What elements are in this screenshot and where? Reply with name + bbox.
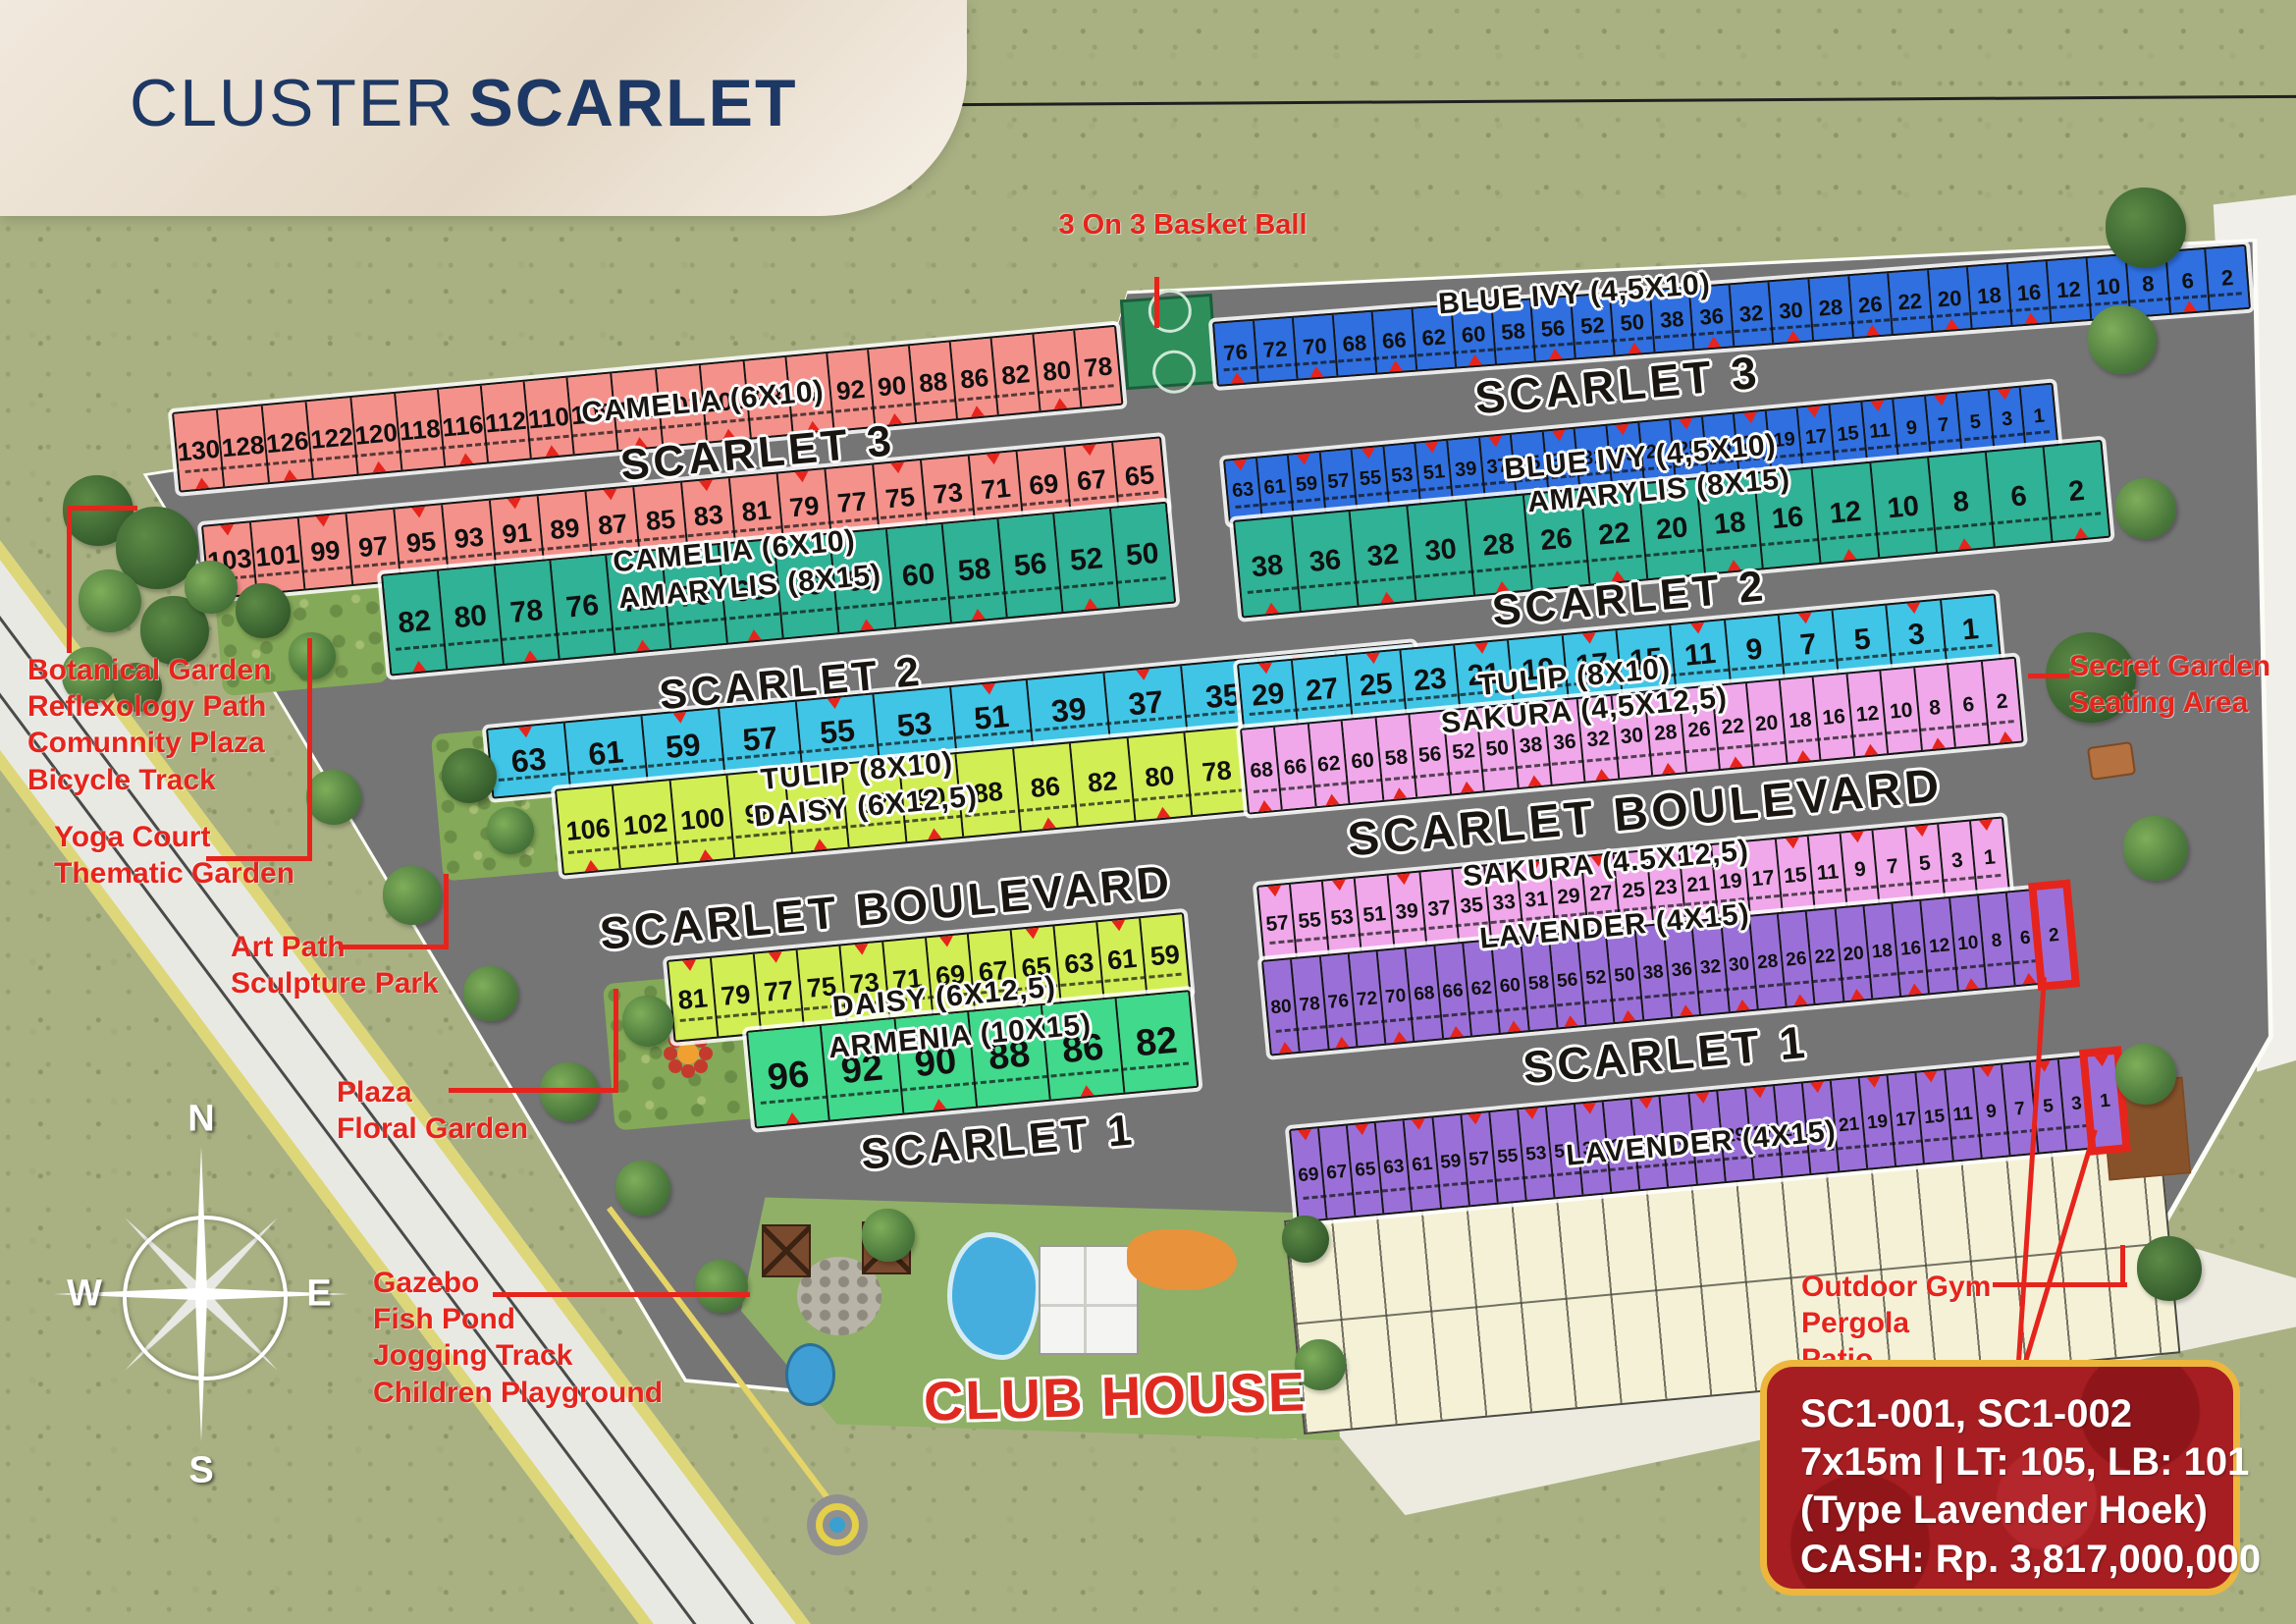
lot-e-76[interactable]: 76 [1214, 321, 1258, 385]
lot-number: 32 [1699, 956, 1722, 977]
lot-number: 59 [1439, 1151, 1462, 1171]
lot-a-126[interactable]: 126 [263, 402, 314, 482]
lot-number: 19 [1718, 870, 1742, 893]
lot-g2-2[interactable]: 2 [1983, 659, 2022, 744]
lot-number: 52 [1584, 967, 1607, 988]
lot-number: 11 [1816, 861, 1840, 884]
lot-number: 16 [2016, 282, 2042, 305]
lot-number: 11 [1869, 420, 1892, 442]
lot-a-116[interactable]: 116 [439, 386, 489, 466]
lot-number: 62 [1316, 752, 1341, 775]
lot-number: 38 [1659, 308, 1684, 332]
lot-number: 38 [1642, 962, 1665, 983]
lot-f2-10[interactable]: 10 [1871, 458, 1938, 557]
lot-number: 17 [1750, 867, 1775, 890]
lot-number: 80 [1144, 762, 1175, 791]
lot-number: 23 [1653, 876, 1678, 898]
label-botanical-garden: Botanical GardenReflexology PathComunnit… [27, 652, 271, 798]
lot-number: 99 [309, 537, 341, 567]
lot-number: 27 [1305, 675, 1340, 707]
lot-b1-99[interactable]: 99 [299, 514, 353, 588]
lot-a-130[interactable]: 130 [174, 410, 225, 491]
tree-icon [185, 561, 238, 614]
leader-line [206, 856, 309, 861]
lot-number: 30 [1620, 725, 1644, 747]
lot-d1-81[interactable]: 81 [668, 958, 719, 1041]
lot-b2-82[interactable]: 82 [383, 571, 448, 675]
title-regular: CLUSTER [130, 66, 454, 140]
lot-number: 80 [1270, 997, 1293, 1017]
lot-number: 59 [1295, 473, 1318, 495]
lot-number: 9 [1744, 635, 1763, 666]
fish-pond-icon [785, 1343, 835, 1406]
leader-line [449, 1088, 617, 1093]
lot-number: 61 [1263, 476, 1287, 498]
lot-c2-102[interactable]: 102 [614, 781, 678, 868]
lot-number: 18 [1713, 508, 1747, 539]
lot-number: 6 [2181, 270, 2195, 293]
lot-number: 80 [1041, 356, 1072, 385]
lot-number: 88 [918, 368, 948, 397]
lot-number: 76 [1223, 341, 1249, 364]
tree-icon [463, 966, 518, 1021]
lot-f2-38[interactable]: 38 [1235, 516, 1302, 616]
lot-c2-100[interactable]: 100 [671, 776, 736, 863]
tree-icon [615, 1161, 670, 1216]
lot-b2-80[interactable]: 80 [439, 566, 504, 669]
lot-number: 3 [1950, 849, 1964, 871]
compass-east: E [306, 1273, 331, 1316]
lot-number: 68 [1250, 759, 1274, 782]
lot-number: 61 [1411, 1154, 1433, 1174]
lot-number: 36 [1308, 546, 1343, 577]
lot-number: 7 [1937, 415, 1949, 436]
lot-number: 73 [933, 479, 964, 509]
lot-a-90[interactable]: 90 [869, 346, 917, 426]
lot-c2-106[interactable]: 106 [557, 785, 621, 873]
lot-number: 62 [1470, 978, 1493, 999]
lot-number: 83 [693, 501, 724, 530]
lot-g1-11[interactable]: 11 [1672, 621, 1732, 690]
lot-number: 17 [1895, 1109, 1917, 1129]
lot-number: 7 [2013, 1099, 2025, 1118]
lot-e-26[interactable]: 26 [1849, 273, 1894, 337]
cluster-scarlet-site-plan: 1301281261221201181161121101081061021009… [0, 0, 2296, 1624]
lot-f2-32[interactable]: 32 [1351, 506, 1417, 605]
floral-garden-icon [677, 1043, 699, 1064]
lot-number: 95 [405, 528, 437, 558]
tree-icon [695, 1260, 748, 1313]
lot-number: 37 [1127, 685, 1164, 720]
lot-number: 32 [1738, 302, 1764, 326]
lot-number: 65 [1124, 461, 1155, 491]
lot-number: 97 [357, 532, 389, 562]
lot-e-66[interactable]: 66 [1373, 309, 1417, 373]
lot-number: 5 [1918, 852, 1932, 874]
lot-number: 21 [1685, 873, 1710, 895]
lot-number: 26 [1857, 294, 1883, 317]
lot-number: 12 [1928, 936, 1950, 956]
tree-icon [289, 632, 336, 679]
lot-number: 86 [1030, 773, 1061, 802]
lot-a-128[interactable]: 128 [218, 406, 269, 486]
lot-number: 120 [353, 419, 399, 449]
lot-g1-23[interactable]: 23 [1401, 645, 1461, 715]
lot-number: 36 [1699, 305, 1725, 329]
lot-number: 29 [1556, 885, 1580, 907]
lot-number: 96 [766, 1056, 811, 1097]
lot-number: 15 [1923, 1107, 1946, 1127]
lot-e-20[interactable]: 20 [1929, 267, 1973, 331]
lot-g1-9[interactable]: 9 [1726, 616, 1786, 685]
lot-number: 5 [1853, 624, 1872, 655]
leader-line [614, 989, 618, 1093]
lot-e-2[interactable]: 2 [2207, 246, 2249, 310]
lot-number: 10 [1886, 492, 1920, 523]
lot-number: 63 [509, 743, 547, 778]
lot-number: 122 [309, 423, 354, 453]
lot-number: 126 [265, 427, 310, 457]
tree-icon [487, 807, 534, 854]
lot-number: 52 [1579, 314, 1605, 338]
lot-number: 8 [1991, 931, 2002, 950]
lot-c2-86[interactable]: 86 [1014, 743, 1079, 831]
lot-number: 2 [2048, 925, 2059, 945]
lot-number: 55 [1298, 909, 1322, 932]
lot-number: 112 [484, 407, 527, 437]
label-line: Pergola [1801, 1305, 1991, 1341]
lot-number: 59 [665, 729, 702, 763]
lot-f2-30[interactable]: 30 [1409, 501, 1475, 600]
lot-number: 65 [1354, 1160, 1376, 1180]
lot-number: 110 [527, 404, 570, 433]
lot-c1-37[interactable]: 37 [1105, 666, 1189, 739]
lot-number: 16 [1899, 938, 1922, 958]
tree-icon [79, 569, 141, 632]
lot-number: 82 [1087, 768, 1118, 797]
page-title: CLUSTERSCARLET [130, 65, 798, 141]
lot-d1-79[interactable]: 79 [712, 954, 762, 1037]
lot-b1-101[interactable]: 101 [251, 518, 305, 593]
lot-number: 27 [1588, 882, 1613, 904]
label-line: Reflexology Path [27, 688, 271, 725]
lot-d1-61[interactable]: 61 [1098, 918, 1148, 1001]
lot-number: 21 [1838, 1114, 1860, 1135]
compass-south: S [188, 1450, 213, 1492]
lot-number: 85 [645, 506, 676, 535]
lot-f2-28[interactable]: 28 [1467, 495, 1533, 594]
label-gazebo: GazeboFish PondJogging TrackChildren Pla… [373, 1265, 663, 1411]
label-line: Floral Garden [337, 1110, 528, 1147]
lot-e-18[interactable]: 18 [1968, 264, 2012, 328]
lot-number: 58 [1384, 746, 1409, 769]
lot-number: 60 [1499, 975, 1522, 996]
tree-icon [2106, 188, 2186, 268]
lot-h1-1[interactable]: 1 [1971, 819, 2008, 896]
lot-number: 78 [1083, 352, 1113, 381]
lot-number: 76 [1327, 992, 1350, 1012]
lot-a-110[interactable]: 110 [524, 378, 574, 459]
lot-g1-25[interactable]: 25 [1347, 650, 1407, 720]
tree-icon [236, 583, 291, 638]
leader-line [493, 1292, 750, 1297]
lot-number: 53 [895, 707, 933, 741]
lot-g1-7[interactable]: 7 [1780, 611, 1840, 680]
lot-number: 26 [1785, 948, 1807, 969]
lot-a-88[interactable]: 88 [910, 342, 958, 422]
tree-icon [1282, 1216, 1329, 1263]
price-info-card: SC1-001, SC1-0027x15m | LT: 105, LB: 101… [1760, 1360, 2240, 1596]
lot-f2-12[interactable]: 12 [1813, 463, 1880, 563]
label-line: Comunnity Plaza [27, 725, 271, 761]
lot-number: 66 [1442, 981, 1465, 1001]
tree-icon [2123, 816, 2188, 881]
lot-number: 8 [1951, 487, 1970, 516]
leader-line [2120, 1245, 2125, 1286]
leader-line [1993, 1282, 2127, 1287]
lot-number: 3 [2001, 409, 2013, 430]
lot-number: 35 [1204, 678, 1242, 713]
lot-b2-50[interactable]: 50 [1111, 504, 1174, 607]
label-line: (Type Lavender Hoek) [1800, 1487, 2233, 1535]
lot-a-82[interactable]: 82 [992, 335, 1041, 415]
lot-number: 128 [221, 431, 266, 460]
lot-number: 89 [549, 514, 580, 544]
lot-number: 57 [1327, 470, 1351, 492]
lot-number: 66 [1283, 755, 1308, 778]
label-line: Jogging Track [373, 1337, 663, 1374]
leader-line [2028, 674, 2069, 678]
lot-number: 52 [1069, 544, 1104, 576]
lot-number: 79 [720, 981, 751, 1010]
lot-number: 72 [1356, 989, 1378, 1009]
lot-number: 57 [1265, 912, 1290, 935]
lot-number: 82 [1134, 1022, 1179, 1063]
lot-number: 130 [177, 436, 222, 465]
lot-a-112[interactable]: 112 [482, 382, 532, 462]
lot-c1-59[interactable]: 59 [642, 709, 725, 783]
lot-f2-8[interactable]: 8 [1929, 453, 1996, 552]
lot-number: 50 [1125, 539, 1160, 571]
lot-d1-63[interactable]: 63 [1055, 922, 1105, 1004]
tree-icon [2088, 305, 2157, 374]
lot-e-70[interactable]: 70 [1294, 315, 1338, 379]
lot-b2-78[interactable]: 78 [495, 561, 560, 664]
lot-g1-1[interactable]: 1 [1942, 596, 2000, 666]
lot-e-28[interactable]: 28 [1809, 276, 1853, 340]
roundabout-fountain [807, 1494, 868, 1555]
lot-e-30[interactable]: 30 [1770, 279, 1814, 343]
lot-c1-61[interactable]: 61 [565, 716, 649, 789]
lot-number: 1 [1983, 846, 1997, 868]
lot-a-118[interactable]: 118 [396, 390, 446, 470]
lot-number: 106 [564, 814, 611, 844]
lot-number: 10 [1889, 699, 1913, 722]
label-line: 7x15m | LT: 105, LB: 101 [1800, 1438, 2233, 1487]
lot-number: 15 [1783, 864, 1807, 887]
lot-number: 57 [741, 722, 778, 756]
lot-number: 78 [1299, 994, 1321, 1014]
lot-number: 52 [1451, 740, 1475, 763]
lot-number: 12 [1855, 702, 1880, 725]
lot-f1-1[interactable]: 1 [2021, 385, 2056, 449]
lot-number: 20 [1655, 514, 1689, 545]
lot-number: 51 [973, 700, 1010, 734]
lot-number: 75 [884, 483, 916, 513]
seating-area-bench [2087, 741, 2136, 781]
lot-number: 55 [819, 714, 856, 748]
title-bold: SCARLET [468, 66, 797, 140]
lot-e-32[interactable]: 32 [1731, 282, 1775, 346]
lot-number: 9 [1853, 858, 1867, 880]
lot-number: 77 [763, 977, 794, 1006]
leader-line [307, 638, 312, 861]
header-card: CLUSTERSCARLET [0, 0, 967, 216]
lot-number: 11 [1683, 639, 1717, 672]
lot-number: 22 [1897, 291, 1923, 314]
lot-number: 93 [454, 523, 485, 553]
lot-number: 16 [1822, 706, 1846, 729]
lot-number: 25 [1621, 879, 1645, 901]
lot-d1-59[interactable]: 59 [1141, 914, 1189, 997]
lot-number: 28 [1756, 951, 1779, 972]
lot-number: 36 [1552, 731, 1576, 753]
lot-number: 17 [1804, 426, 1828, 448]
lot-e-16[interactable]: 16 [2007, 261, 2052, 325]
lot-c1-39[interactable]: 39 [1028, 673, 1111, 746]
lot-number: 25 [1359, 670, 1394, 702]
label-line: Children Playground [373, 1375, 663, 1411]
lot-number: 16 [1771, 503, 1805, 534]
lot-g1-5[interactable]: 5 [1834, 606, 1894, 676]
lot-number: 32 [1365, 540, 1400, 571]
lot-number: 101 [254, 540, 300, 570]
lot-number: 12 [2056, 279, 2081, 302]
lot-number: 60 [1350, 749, 1374, 772]
lot-e-22[interactable]: 22 [1889, 270, 1933, 334]
lot-number: 68 [1413, 983, 1435, 1003]
lot-number: 7 [1886, 855, 1899, 877]
lot-g1-3[interactable]: 3 [1888, 600, 1948, 670]
lot-b2-52[interactable]: 52 [1055, 509, 1120, 612]
lot-number: 86 [959, 364, 989, 393]
lot-number: 39 [1454, 459, 1477, 480]
label-plaza: PlazaFloral Garden [337, 1074, 528, 1147]
lot-number: 5 [1969, 412, 1982, 433]
lot-b2-56[interactable]: 56 [999, 514, 1064, 617]
lot-number: 36 [1671, 959, 1693, 980]
lot-number: 2 [2067, 476, 2086, 506]
lot-number: 8 [1928, 697, 1942, 719]
lot-number: 11 [1952, 1104, 1974, 1124]
lot-e-72[interactable]: 72 [1255, 318, 1299, 382]
lot-d1-77[interactable]: 77 [755, 950, 805, 1033]
lot-b2-58[interactable]: 58 [943, 519, 1008, 623]
lot-number: 55 [1496, 1146, 1519, 1166]
lot-number: 56 [1013, 549, 1048, 581]
lot-number: 12 [1829, 497, 1863, 528]
lot-number: 29 [1251, 679, 1286, 712]
lot-g1-29[interactable]: 29 [1239, 661, 1299, 731]
lot-number: 72 [1262, 338, 1288, 361]
lot-number: 1 [2099, 1091, 2110, 1110]
lot-number: 20 [1842, 944, 1865, 964]
lot-number: 59 [1149, 941, 1181, 970]
lot-number: 20 [1937, 288, 1962, 311]
lot-number: 6 [1962, 693, 1976, 715]
lot-number: 51 [1422, 461, 1446, 483]
lot-a-120[interactable]: 120 [351, 394, 402, 474]
lot-number: 66 [1381, 329, 1407, 352]
lot-c1-63[interactable]: 63 [488, 724, 571, 797]
lot-d2-96[interactable]: 96 [748, 1026, 830, 1127]
lot-b2-60[interactable]: 60 [887, 524, 952, 627]
lot-number: 50 [1620, 311, 1645, 335]
lot-number: 70 [1302, 335, 1327, 358]
lot-e-6[interactable]: 6 [2166, 249, 2211, 313]
lot-number: 38 [1251, 551, 1285, 582]
lot-number: 3 [2070, 1094, 2082, 1113]
label-basketball: 3 On 3 Basket Ball [1058, 208, 1307, 244]
lot-number: 61 [1106, 945, 1138, 974]
tree-icon [306, 770, 361, 825]
lot-number: 18 [1871, 941, 1894, 961]
lot-e-12[interactable]: 12 [2048, 258, 2092, 322]
lot-g1-27[interactable]: 27 [1293, 656, 1353, 726]
label-line: Secret Garden [2069, 648, 2270, 684]
lot-a-78[interactable]: 78 [1075, 327, 1121, 406]
lot-number: 9 [1985, 1102, 1997, 1121]
lot-number: 35 [1459, 893, 1483, 916]
lot-f2-36[interactable]: 36 [1293, 512, 1360, 611]
lot-number: 58 [957, 555, 992, 587]
lot-c2-82[interactable]: 82 [1071, 738, 1136, 826]
lot-number: 2 [2220, 267, 2234, 290]
lot-number: 30 [1778, 299, 1803, 323]
lot-d2-82[interactable]: 82 [1116, 992, 1197, 1092]
lot-number: 22 [1814, 947, 1837, 967]
lot-number: 56 [1556, 970, 1578, 991]
lot-a-122[interactable]: 122 [307, 398, 358, 478]
gazebo-icon [762, 1224, 811, 1277]
lot-f2-2[interactable]: 2 [2045, 442, 2109, 541]
label-line: Yoga Court [54, 819, 294, 855]
tree-icon [2115, 478, 2176, 539]
label-line: Bicycle Track [27, 762, 271, 798]
lot-number: 69 [1298, 1164, 1320, 1185]
leader-line [67, 506, 137, 511]
lot-number: 23 [1413, 664, 1448, 696]
lot-number: 53 [1524, 1143, 1547, 1164]
lot-e-68[interactable]: 68 [1333, 312, 1377, 376]
lot-f2-6[interactable]: 6 [1987, 447, 2054, 546]
lot-number: 55 [1359, 467, 1382, 489]
lot-number: 1 [1961, 615, 1980, 645]
lot-number: 39 [1049, 693, 1087, 728]
lot-c1-51[interactable]: 51 [951, 680, 1035, 754]
label-secret-garden: Secret GardenSeating Area [2069, 648, 2270, 721]
tree-icon [442, 748, 497, 803]
lot-number: 78 [1201, 757, 1232, 786]
lot-a-86[interactable]: 86 [951, 338, 999, 418]
lot-number: 2 [1996, 690, 2009, 712]
lot-number: 62 [1421, 326, 1447, 350]
lot-a-80[interactable]: 80 [1034, 331, 1082, 411]
lot-number: 6 [2019, 928, 2031, 947]
lot-b2-76[interactable]: 76 [551, 556, 615, 659]
lot-c2-80[interactable]: 80 [1128, 732, 1193, 820]
lot-number: 63 [1231, 479, 1255, 501]
